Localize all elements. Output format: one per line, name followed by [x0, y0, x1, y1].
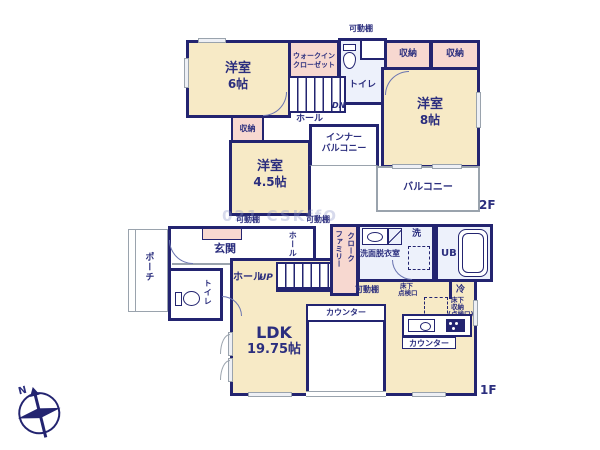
genkan-label: 玄関	[214, 243, 236, 256]
window-ldk-right	[473, 300, 478, 326]
hall-label-2f: ホール	[296, 114, 323, 124]
room45-name-label: 洋室	[242, 160, 298, 175]
shoe-shelf	[202, 228, 242, 240]
kitchen-sink-basin-icon	[420, 322, 431, 331]
toilet-tank-icon-2f	[343, 44, 356, 51]
bathtub-icon	[458, 229, 488, 277]
washroom-label: 洗面脱衣室	[360, 249, 400, 258]
window-2f-top	[198, 38, 226, 43]
washer-label: 洗	[412, 229, 421, 239]
ldk-size-label: 19.75帖	[238, 343, 310, 358]
inner-balcony-label1: インナー	[314, 133, 374, 143]
vanity-sink-icon	[362, 228, 388, 245]
toilet-label-1f: トイレ	[203, 279, 212, 306]
stairs-dn-label: DN	[332, 101, 345, 110]
counter-label: カウンター	[308, 308, 384, 317]
storage-2f-c-label: 収納	[233, 124, 262, 133]
floor-label-2f: 2F	[479, 199, 496, 213]
ldk-name-label: LDK	[244, 324, 304, 342]
window-2f-left	[184, 58, 189, 88]
shelf-closet-2f	[360, 41, 384, 60]
room8-size-label: 8帖	[404, 114, 456, 128]
stairs-up-label: UP	[259, 273, 273, 283]
vanity-counter-icon	[388, 228, 402, 245]
hall-vertical-label-1f: ホール	[288, 231, 297, 258]
compass: N	[11, 383, 69, 441]
compass-north-label: N	[17, 385, 28, 398]
window-room8-balcony-b	[432, 164, 462, 169]
casement-window-arc-a	[220, 334, 230, 354]
unit-bath-label: UB	[441, 248, 457, 260]
bathtub-inner-icon	[462, 233, 484, 273]
casement-window-arc-b	[220, 360, 230, 380]
porch-label: ポーチ	[143, 252, 153, 282]
room8-name-label: 洋室	[402, 98, 458, 113]
window-ldk-bottom	[248, 392, 292, 397]
window-room8-balcony-a	[392, 164, 422, 169]
porch-step-line	[135, 230, 136, 311]
kitchen-sink-icon	[408, 319, 435, 332]
shelf-label-2f: 可動棚	[349, 24, 373, 33]
room45-size-label: 4.5帖	[242, 176, 298, 190]
underfloor-access-label2: 点検口	[398, 290, 418, 297]
floorplan-canvas: 洋室 6帖 ウォークイン クローゼット 可動棚 トイレ 収納 収納 洋室 8帖 …	[0, 0, 600, 450]
storage-2f-a-label: 収納	[388, 49, 428, 59]
void-terrace	[306, 322, 386, 397]
storage-2f-b-label: 収納	[435, 49, 475, 59]
room6-name-label: 洋室	[210, 62, 266, 77]
shelf-label-1f-b: 可動棚	[306, 215, 330, 224]
stove-icon	[446, 319, 465, 332]
balcony-label: バルコニー	[390, 182, 466, 194]
family-closet-label2: クローク	[346, 232, 355, 262]
kitchen-counter-label: カウンター	[403, 339, 455, 348]
shelf-label-1f-c: 可動棚	[355, 285, 379, 294]
vanity-basin-icon	[367, 232, 383, 242]
toilet-label-2f: トイレ	[349, 80, 376, 90]
floor-label-1f: 1F	[480, 384, 497, 398]
window-kitchen-bottom	[412, 392, 446, 397]
fridge-label: 冷	[456, 285, 465, 295]
family-closet-label1: ファミリー	[334, 230, 343, 268]
stairs-1f	[276, 262, 332, 292]
window-2f-right	[476, 92, 481, 128]
kitchen-counter	[402, 314, 472, 337]
toilet-bowl-icon-1f	[183, 291, 200, 306]
room6-size-label: 6帖	[212, 78, 264, 92]
toilet-tank-icon-1f	[175, 292, 182, 306]
terrace-opening-sill	[306, 391, 386, 397]
shelf-label-1f-a: 可動棚	[236, 215, 260, 224]
wic-label-line2: クローゼット	[293, 61, 335, 69]
inner-balcony-label2: バルコニー	[314, 144, 374, 154]
wic-label-line1: ウォークイン	[293, 52, 335, 60]
